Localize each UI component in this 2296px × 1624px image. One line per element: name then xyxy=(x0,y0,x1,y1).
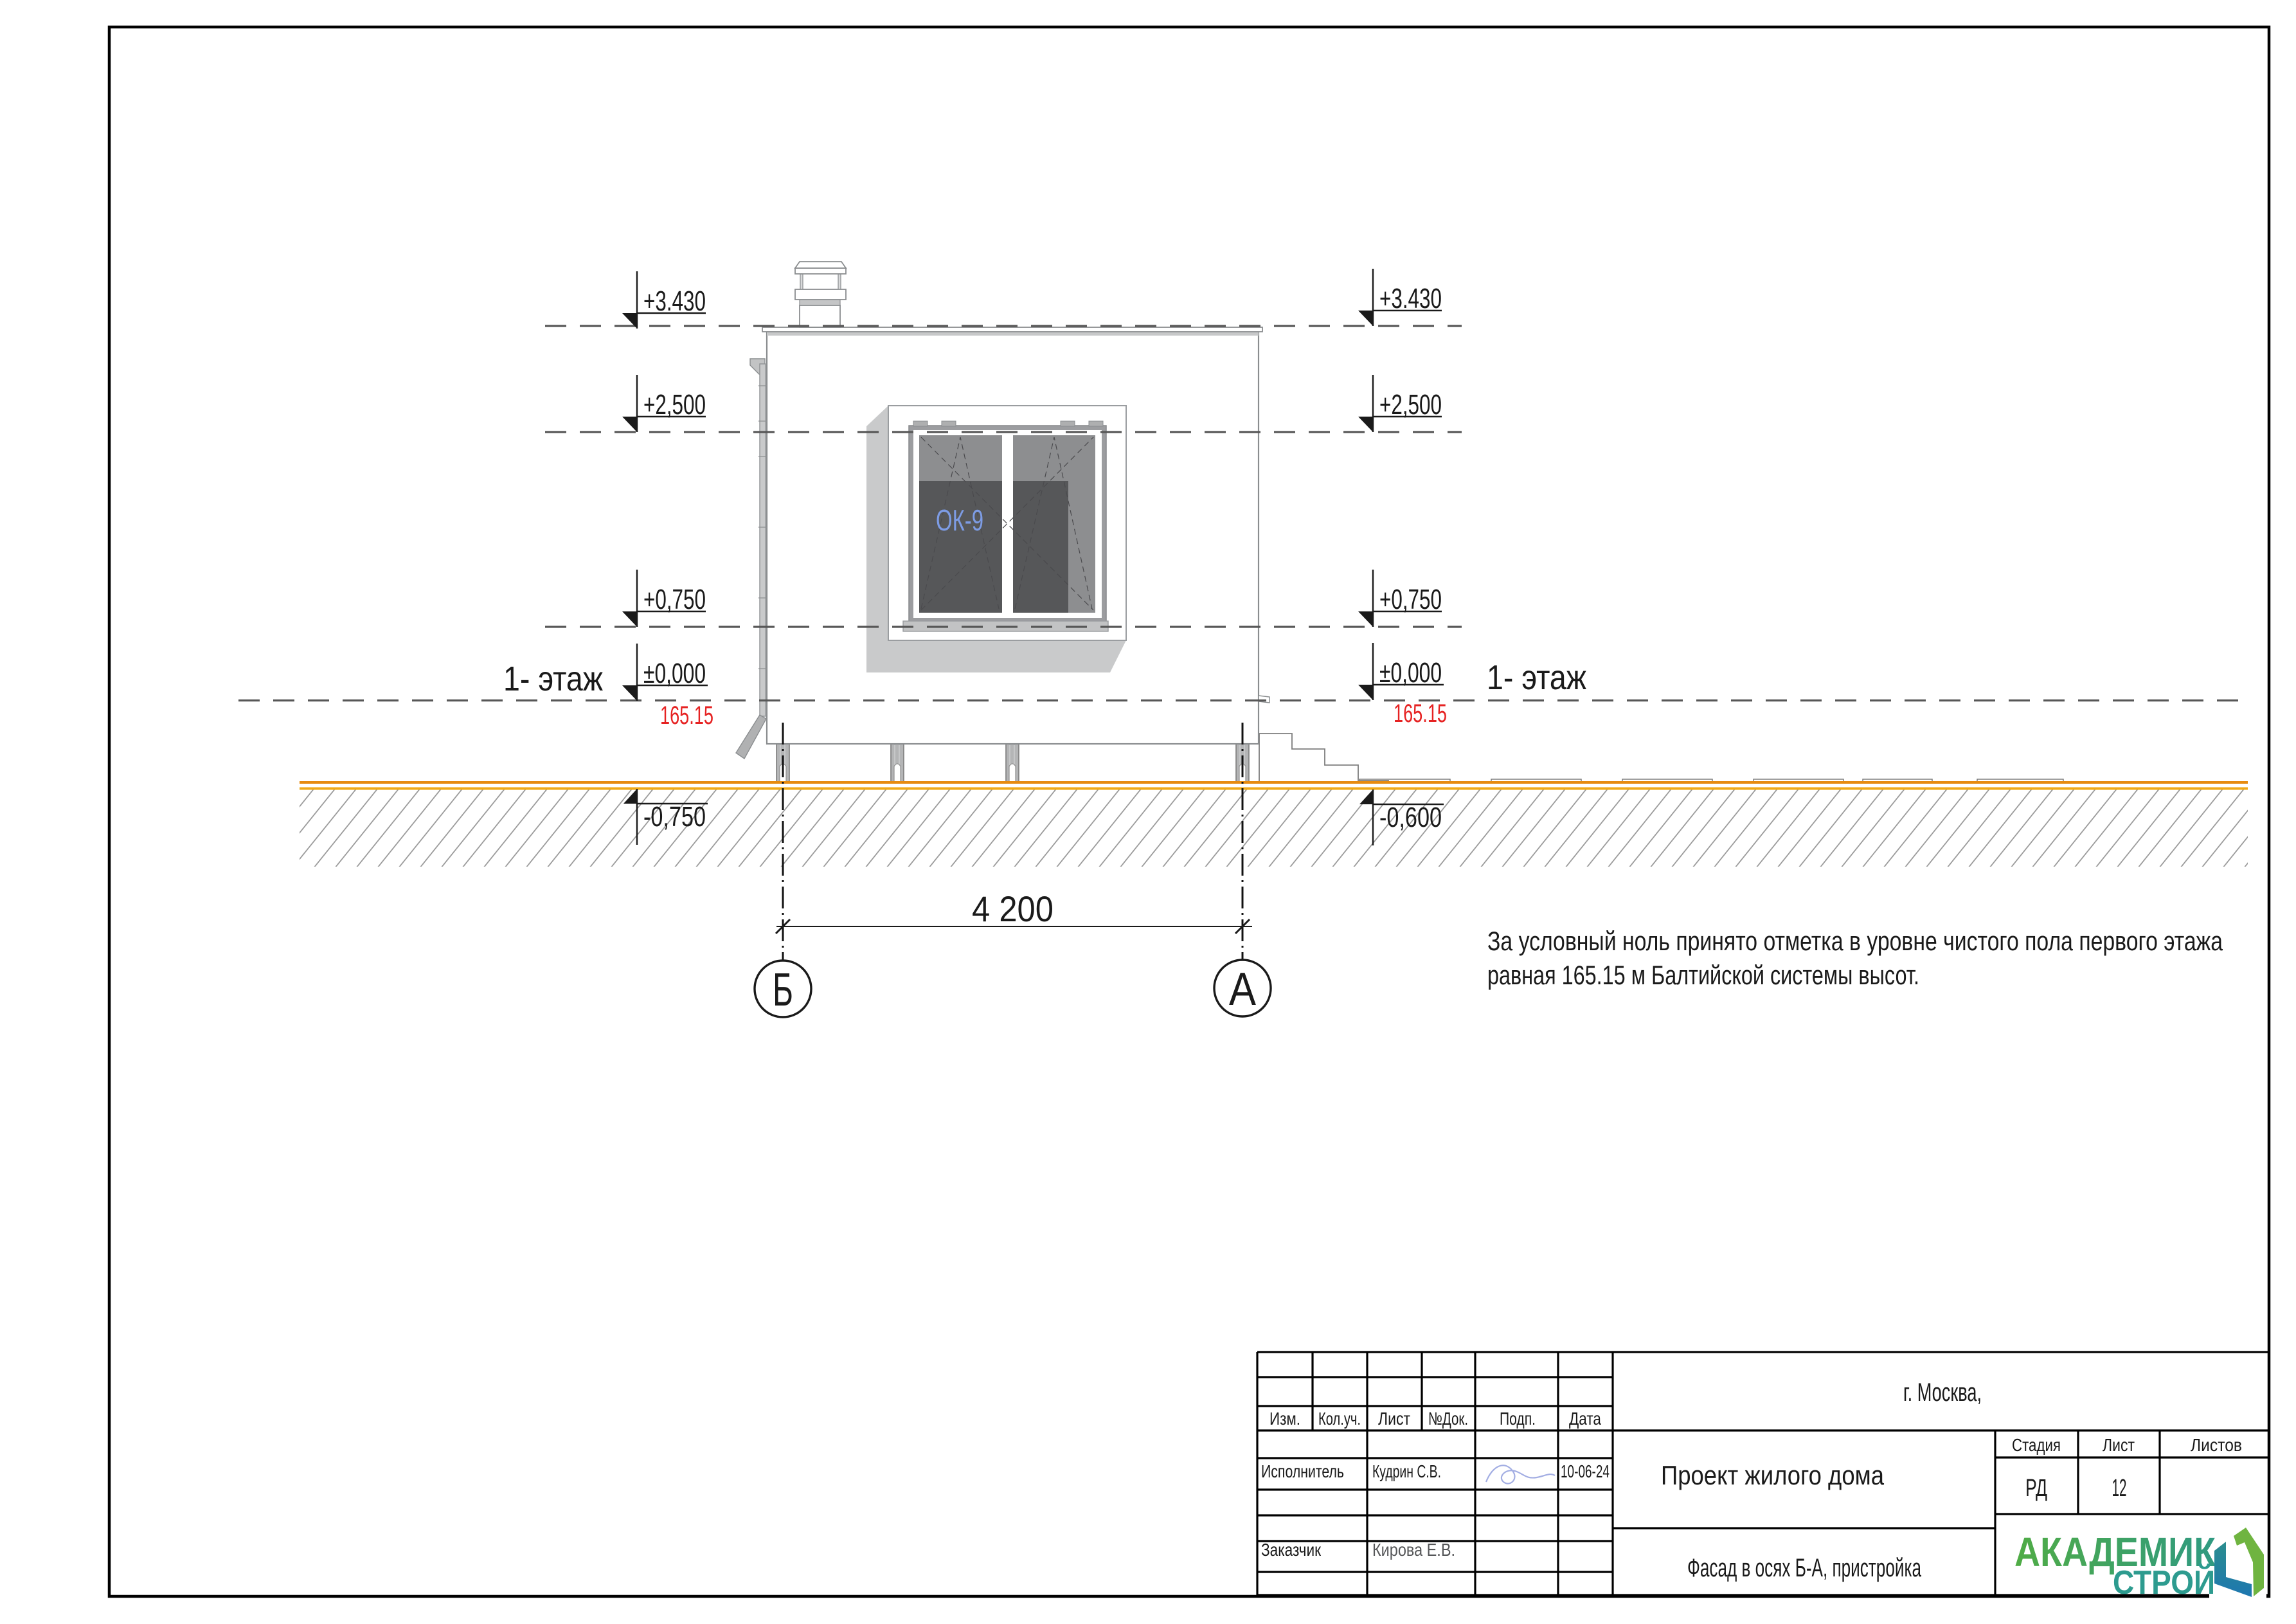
svg-text:±0,000: ±0,000 xyxy=(643,658,706,689)
svg-text:г. Москва,: г. Москва, xyxy=(1903,1378,1982,1407)
svg-text:А: А xyxy=(1229,964,1256,1015)
svg-text:Заказчик: Заказчик xyxy=(1261,1540,1322,1560)
svg-text:№Док.: №Док. xyxy=(1428,1409,1468,1429)
svg-text:+2,500: +2,500 xyxy=(1379,389,1442,420)
svg-text:+0,750: +0,750 xyxy=(1379,584,1442,615)
svg-text:Стадия: Стадия xyxy=(2012,1435,2061,1455)
svg-text:равная 165.15 м Балтийской сис: равная 165.15 м Балтийской системы высот… xyxy=(1487,960,1919,990)
svg-text:10-06-24: 10-06-24 xyxy=(1561,1461,1610,1481)
svg-text:ОК-9: ОК-9 xyxy=(936,503,983,537)
svg-text:Проект жилого дома: Проект жилого дома xyxy=(1661,1460,1885,1490)
svg-text:165.15: 165.15 xyxy=(660,701,713,730)
svg-text:±0,000: ±0,000 xyxy=(1379,657,1442,689)
svg-text:12: 12 xyxy=(2112,1475,2127,1502)
svg-text:Дата: Дата xyxy=(1569,1409,1601,1429)
svg-text:Исполнитель: Исполнитель xyxy=(1261,1461,1344,1481)
svg-text:Листов: Листов xyxy=(2191,1435,2242,1455)
svg-text:165.15: 165.15 xyxy=(1394,699,1447,728)
svg-text:-0,600: -0,600 xyxy=(1379,802,1442,833)
svg-text:Подп.: Подп. xyxy=(1500,1409,1536,1429)
svg-text:РД: РД xyxy=(2025,1475,2047,1502)
svg-text:Б: Б xyxy=(773,964,793,1016)
svg-text:1- этаж: 1- этаж xyxy=(1487,658,1586,697)
svg-text:Изм.: Изм. xyxy=(1269,1409,1300,1429)
svg-text:Фасад в осях Б-А, пристройка: Фасад в осях Б-А, пристройка xyxy=(1687,1554,1921,1582)
svg-text:Кирова Е.В.: Кирова Е.В. xyxy=(1372,1540,1455,1560)
svg-text:+0,750: +0,750 xyxy=(643,584,706,615)
svg-text:За условный ноль принято отмет: За условный ноль принято отметка в уровн… xyxy=(1487,926,2223,956)
svg-text:4 200: 4 200 xyxy=(972,889,1054,929)
svg-text:Лист: Лист xyxy=(1378,1409,1410,1429)
svg-text:-0,750: -0,750 xyxy=(643,801,706,833)
svg-text:Кол.уч.: Кол.уч. xyxy=(1318,1409,1361,1429)
svg-text:Кудрин С.В.: Кудрин С.В. xyxy=(1372,1461,1441,1481)
svg-text:+2,500: +2,500 xyxy=(643,389,706,420)
svg-text:1- этаж: 1- этаж xyxy=(503,660,603,698)
svg-text:+3.430: +3.430 xyxy=(643,285,706,317)
svg-text:+3.430: +3.430 xyxy=(1379,283,1442,314)
svg-text:СТРОЙ: СТРОЙ xyxy=(2113,1564,2215,1601)
svg-text:Лист: Лист xyxy=(2103,1435,2135,1455)
